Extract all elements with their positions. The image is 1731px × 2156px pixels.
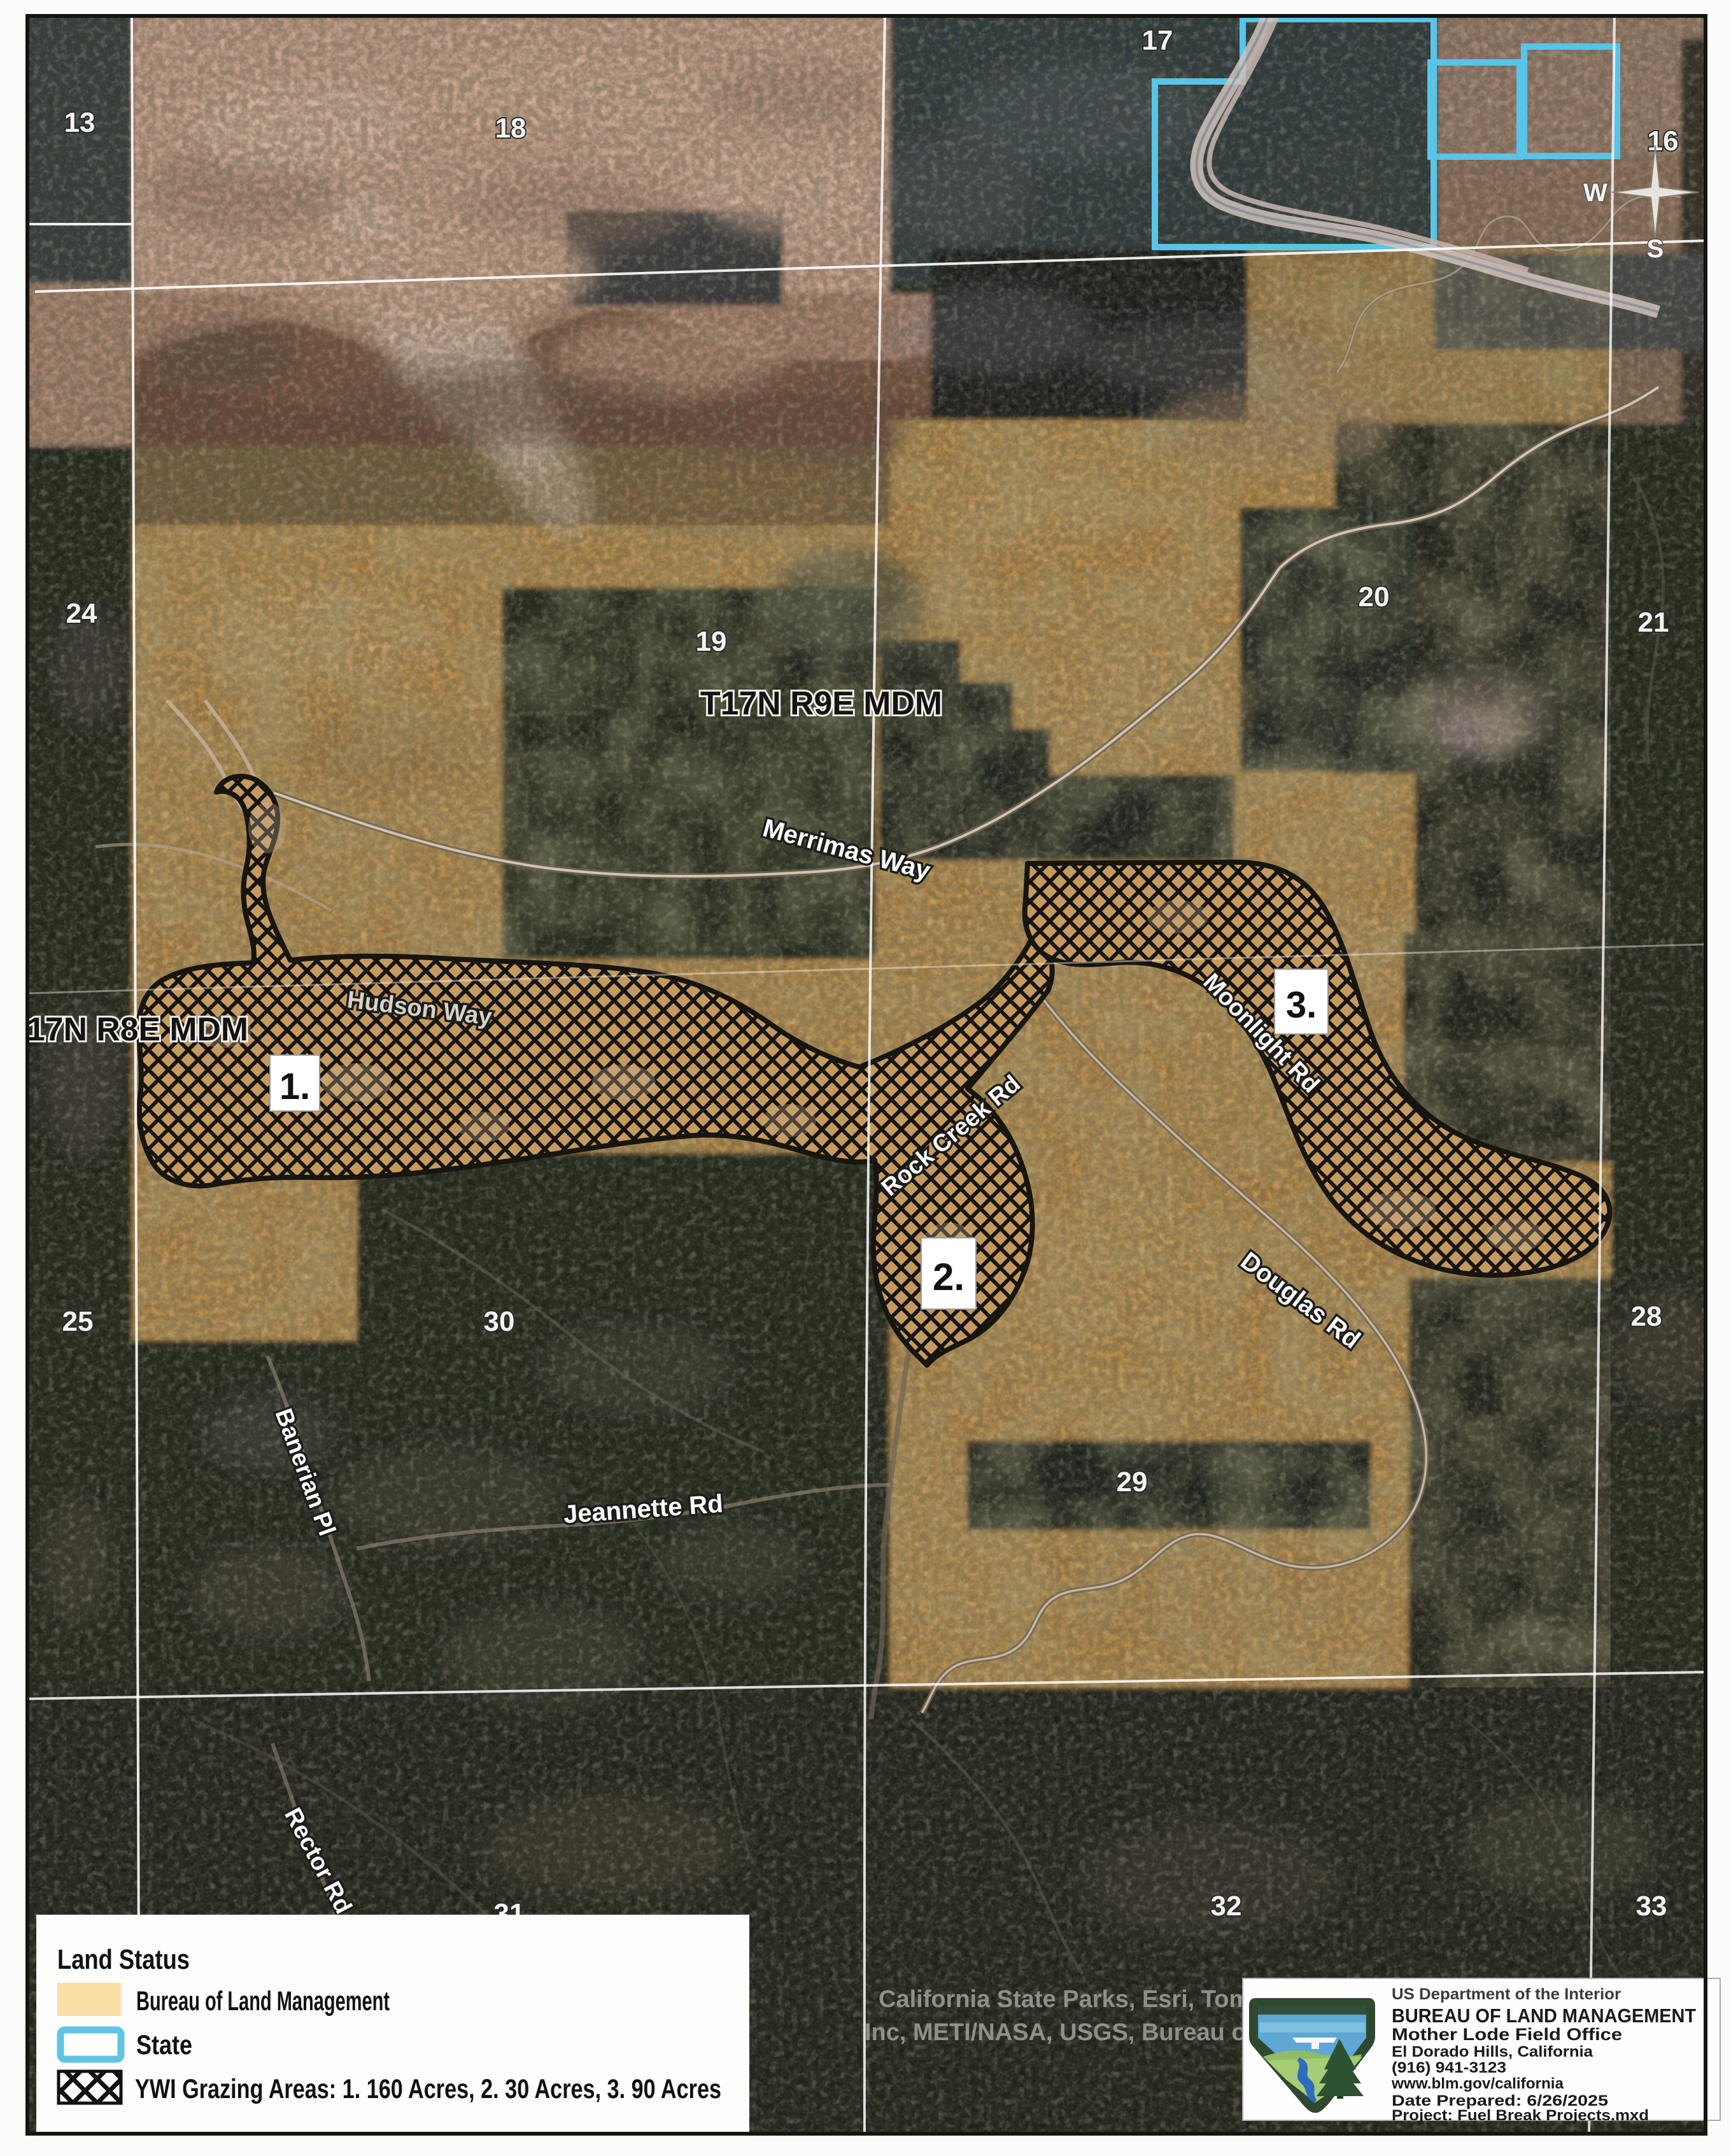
svg-text:Inc, METI/NASA, USGS, Bureau o: Inc, METI/NASA, USGS, Bureau of L — [865, 2019, 1276, 2046]
svg-text:30: 30 — [484, 1306, 515, 1337]
svg-text:S: S — [1647, 235, 1664, 263]
svg-text:BUREAU OF LAND MANAGEMENT: BUREAU OF LAND MANAGEMENT — [1392, 2004, 1696, 2027]
svg-text:21: 21 — [1638, 607, 1669, 638]
svg-text:28: 28 — [1631, 1301, 1662, 1332]
svg-text:17: 17 — [1142, 25, 1173, 56]
svg-text:25: 25 — [62, 1306, 94, 1337]
svg-text:17N R8E MDM: 17N R8E MDM — [27, 1011, 248, 1048]
svg-text:El Dorado Hills, California: El Dorado Hills, California — [1392, 2043, 1593, 2060]
svg-text:US Department of the Interior: US Department of the Interior — [1392, 1985, 1621, 2003]
svg-text:www.blm.gov/california: www.blm.gov/california — [1391, 2075, 1564, 2092]
svg-text:19: 19 — [696, 626, 727, 657]
svg-text:California State Parks, Esri,: California State Parks, Esri, TomTom — [879, 1986, 1300, 2013]
svg-text:2.: 2. — [933, 1256, 964, 1298]
svg-text:32: 32 — [1211, 1890, 1242, 1922]
svg-text:(916) 941-3123: (916) 941-3123 — [1392, 2059, 1506, 2076]
svg-text:20: 20 — [1359, 581, 1390, 613]
svg-text:State: State — [136, 2030, 192, 2060]
svg-text:Land Status: Land Status — [57, 1944, 190, 1975]
svg-text:29: 29 — [1117, 1466, 1148, 1498]
svg-text:13: 13 — [64, 107, 95, 138]
svg-text:33: 33 — [1636, 1890, 1667, 1922]
svg-text:3.: 3. — [1286, 984, 1317, 1026]
svg-text:16: 16 — [1648, 125, 1679, 157]
svg-text:Mother Lode Field Office: Mother Lode Field Office — [1392, 2025, 1622, 2044]
svg-text:YWI Grazing Areas: 1. 160 Acre: YWI Grazing Areas: 1. 160 Acres, 2. 30 A… — [135, 2074, 721, 2104]
svg-text:Bureau of Land Management: Bureau of Land Management — [136, 1986, 390, 2017]
svg-text:24: 24 — [66, 598, 97, 629]
svg-text:T17N R9E MDM: T17N R9E MDM — [700, 685, 942, 722]
svg-text:W: W — [1583, 179, 1607, 207]
svg-text:Project: Fuel Break Projects.m: Project: Fuel Break Projects.mxd — [1392, 2107, 1649, 2124]
svg-text:18: 18 — [495, 113, 526, 144]
svg-text:1.: 1. — [279, 1066, 310, 1107]
